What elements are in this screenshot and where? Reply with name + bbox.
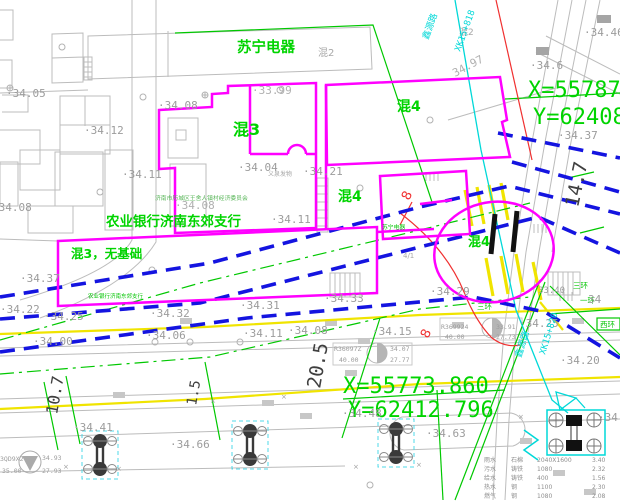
elevation: ·34.41 [73, 421, 113, 434]
legend-cell: 1.56 [592, 475, 606, 482]
label-building-hun2-a: 混2 [318, 47, 334, 59]
legend-cell: 铸铁 [511, 465, 523, 473]
legend-cell: 400 [537, 475, 549, 482]
label-hun3-no-foundation: 混3，无基础 [71, 246, 142, 261]
cad-drawing: 苏宁电器混3混4混4混4农业银行济南东郊支行混3，无基础农业银行济南东郊支行济南… [0, 0, 620, 501]
parcel-line [0, 90, 88, 241]
benchmark-id: R36097Z [334, 345, 361, 353]
legend-cell: 石棉 [511, 456, 523, 464]
pole-symbol [367, 482, 373, 488]
pole-symbol [427, 117, 433, 123]
elevation: ·34.25 [44, 310, 84, 323]
building-outline-hun4-a [326, 77, 510, 165]
benchmark-value: 27.73 [496, 333, 516, 341]
hatch-symbol [534, 224, 546, 233]
elevation: 34 [588, 293, 602, 306]
legend-cell: 1080 [537, 493, 552, 500]
elevation: 33.40 [538, 286, 565, 296]
legend-cell: 1080 [537, 466, 552, 473]
benchmark-value: 34.07 [390, 345, 410, 353]
survey-cross: × [116, 465, 122, 473]
legend-cell: 给水 [484, 474, 496, 482]
label-red-8-a: 8 [399, 189, 416, 203]
benchmark-triangle [22, 456, 38, 471]
label-suning-small: 苏宁电器 [382, 223, 405, 231]
elevation: ·34.11 [122, 168, 162, 181]
legend-cell: 1100 [537, 484, 552, 491]
legend-cell: 钢 [511, 492, 517, 500]
cad-site-plan-canvas: 苏宁电器混3混4混4混4农业银行济南东郊支行混3，无基础农业银行济南东郊支行济南… [0, 0, 620, 501]
pole-symbol [97, 189, 103, 195]
elevation: ·34.46 [584, 26, 620, 39]
survey-cross: × [281, 393, 287, 401]
elevation: ·34.37 [558, 129, 598, 142]
road-marking [262, 400, 274, 406]
road-marking [572, 318, 584, 324]
pipeline-dashed-line [0, 186, 620, 297]
legend-cell: 铸铁 [511, 474, 523, 482]
benchmark-id: 3QD9X2 [0, 455, 24, 463]
label-building-hun3: 混3 [233, 120, 260, 139]
elevation: ·34.66 [170, 438, 210, 451]
survey-cross: × [518, 413, 524, 421]
label-agri-bank-small: 农业银行济南东郊支行 [88, 292, 144, 300]
parcel-boundary [175, 25, 433, 205]
legend-cell: 3.40 [592, 457, 606, 464]
legend-cell: 钢 [511, 483, 517, 491]
elevation: ·34.15 [372, 325, 412, 338]
legend-cell: 2.32 [592, 466, 606, 473]
dumbbell-pole-symbol [232, 421, 268, 469]
elevation: ·34.08 [158, 99, 198, 112]
elevation: ·34.11 [271, 213, 311, 226]
building-arc [288, 145, 306, 154]
label-ring-west: 西环 [600, 320, 615, 329]
road-marking [553, 470, 565, 476]
coordinate-y-top: Y=62408 [533, 105, 620, 130]
survey-cross: × [353, 463, 359, 471]
legend-cell: 燃气 [484, 492, 496, 500]
benchmark-value: 40.00 [339, 356, 359, 364]
dumbbell-pole-symbol [82, 431, 118, 479]
label-4-1: 4/1 [403, 252, 414, 260]
elevation: ·34.08 [0, 201, 32, 214]
elevation: ·34.20 [560, 354, 600, 367]
building-outline [52, 33, 83, 83]
dimension-1-5: 1.5 [184, 379, 204, 407]
road-marking [536, 47, 549, 55]
label-building-hun4-a: 混4 [397, 99, 421, 115]
elevation: ·34.37 [20, 272, 60, 285]
benchmark-value: 40.00 [445, 333, 465, 341]
yellow-tick-group-lower [486, 254, 541, 300]
elevation: ·34.6 [530, 59, 563, 72]
pole-symbol [140, 94, 146, 100]
road-marking [597, 15, 611, 23]
elevation: ·34.48 [342, 407, 382, 420]
survey-cross: × [416, 461, 422, 469]
road-marking [358, 338, 370, 344]
benchmark-id: R369924 [441, 323, 468, 331]
elevation: ·34.04 [238, 161, 278, 174]
coordinate-x-top: X=55787 [528, 78, 620, 103]
label-building-hun4-b: 混4 [338, 189, 362, 205]
legend-cell: 雨水 [484, 456, 496, 464]
legend-cell: 2.30 [592, 484, 606, 491]
pipe-zigzag [524, 430, 538, 460]
label-ring3-a: 三环 [573, 281, 588, 290]
elevation: ·34.21 [303, 165, 343, 178]
elevation: ·34.33 [324, 292, 364, 305]
elevation: ·34.63 [426, 427, 466, 440]
label-ring3-b: 三环 [477, 302, 492, 311]
label-suning-store: 苏宁电器 [237, 38, 295, 56]
dimension-14-7: 14.7 [561, 160, 592, 209]
label-building-hun4-c: 混4 [468, 235, 490, 250]
elevation: ·34.22 [0, 303, 40, 316]
label-agri-bank: 农业银行济南东郊支行 [105, 213, 241, 230]
elevation: ·34.08 [288, 324, 328, 337]
dimension-10-7: 10.7 [42, 374, 67, 415]
elevation: ·34.08 [175, 199, 215, 212]
benchmark-value: 35.00 [2, 467, 22, 475]
crossing-bar [513, 211, 517, 252]
road-marking [520, 438, 532, 444]
elevation: ·34.00 [33, 335, 73, 348]
legend-cell: 污水 [484, 465, 496, 473]
pole-symbol [187, 339, 193, 345]
legend-cell: 2.08 [592, 493, 606, 500]
road-marking [113, 392, 125, 398]
elevation: ·34.06 [146, 329, 186, 342]
elevation: ·33.99 [252, 84, 292, 97]
elevation: ·34.12 [84, 124, 124, 137]
elevation: ·34 [598, 411, 618, 424]
pole-symbol [59, 44, 65, 50]
elevation: ·34.29 [430, 285, 470, 298]
elevation: ·34.05 [6, 87, 46, 100]
label-red-8-b: 8 [418, 327, 435, 341]
benchmark-value: 27.77 [390, 356, 410, 364]
survey-cross: × [63, 463, 69, 471]
elevation: ·34.11 [243, 327, 283, 340]
coordinate-x-bottom: X=55773.860 [343, 374, 489, 399]
legend-cell: 热水 [484, 483, 496, 491]
survey-cross: × [210, 397, 216, 405]
elevation: ·34.32 [150, 307, 190, 320]
legend-cell: 2040X1600 [537, 457, 572, 464]
elevation: ·34.31 [240, 299, 280, 312]
benchmark-value: 33.91 [496, 323, 516, 331]
benchmark-value: 27.93 [42, 467, 62, 475]
crossing-bar [491, 214, 495, 254]
label-road-xinyuan-top: 鑫源路 [420, 12, 441, 41]
road-marking [300, 413, 312, 419]
tower-symbol [549, 413, 601, 453]
crossing-bars-layer [491, 211, 517, 254]
benchmark-value: 34.93 [42, 454, 62, 462]
